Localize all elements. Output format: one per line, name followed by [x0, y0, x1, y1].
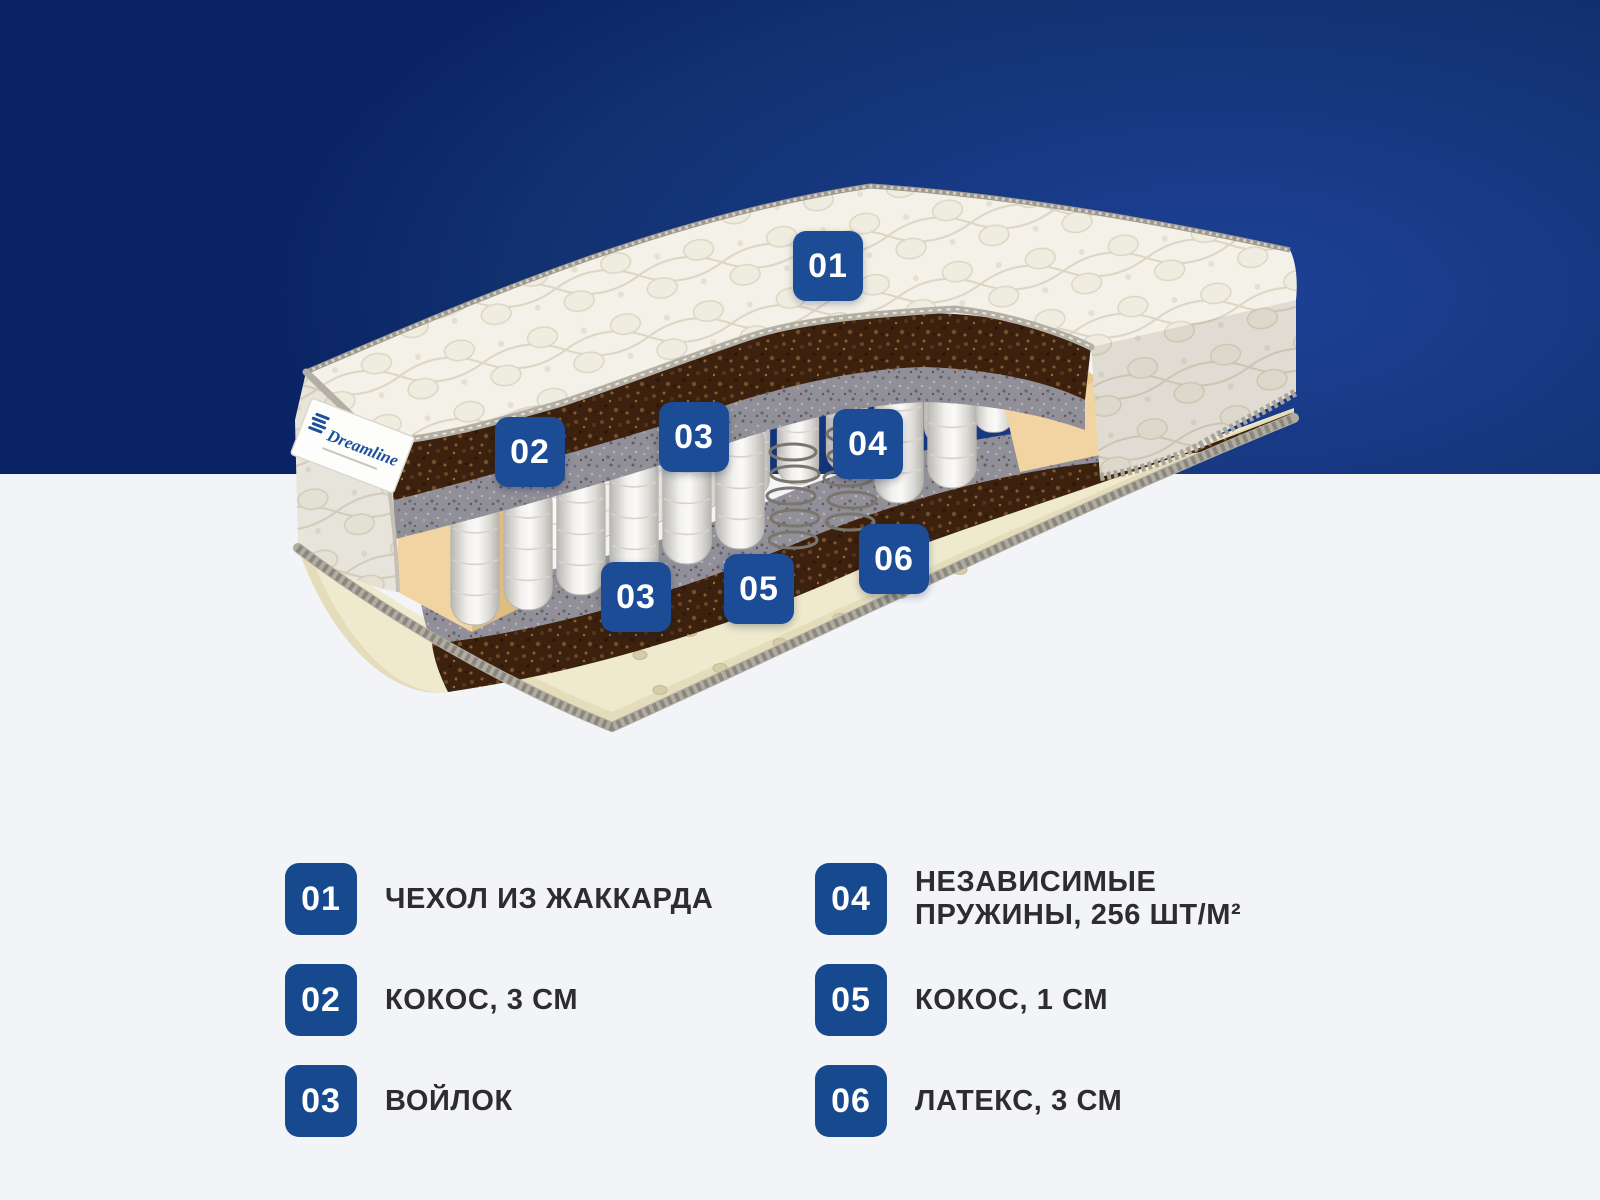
legend-label-02-line1: КОКОС, 3 СМ: [385, 984, 578, 1017]
legend-item-06: 06 ЛАТЕКС, 3 СМ: [815, 1065, 1241, 1137]
callout-badge-05: 05: [724, 554, 794, 624]
mattress-diagram: Dreamline 01 02 03 04 03 05 06: [0, 0, 1600, 1200]
legend-number-02: 02: [285, 964, 357, 1036]
legend-label-06: ЛАТЕКС, 3 СМ: [915, 1085, 1122, 1118]
callout-badge-01-number: 01: [808, 247, 848, 286]
callout-badge-03-bottom: 03: [601, 562, 671, 632]
callout-badge-03-top-number: 03: [674, 418, 714, 457]
callout-badge-05-number: 05: [739, 570, 779, 609]
legend-item-01: 01 ЧЕХОЛ ИЗ ЖАККАРДА: [285, 863, 713, 935]
legend-label-04: НЕЗАВИСИМЫЕ ПРУЖИНЫ, 256 ШТ/М²: [915, 866, 1241, 932]
legend-item-04: 04 НЕЗАВИСИМЫЕ ПРУЖИНЫ, 256 ШТ/М²: [815, 863, 1241, 935]
legend-label-04-line1: НЕЗАВИСИМЫЕ: [915, 866, 1241, 899]
callout-badge-01: 01: [793, 231, 863, 301]
legend-number-06: 06: [815, 1065, 887, 1137]
callout-badge-06-number: 06: [874, 540, 914, 579]
legend-label-03: ВОЙЛОК: [385, 1085, 513, 1118]
legend-number-03: 03: [285, 1065, 357, 1137]
legend-column-left: 01 ЧЕХОЛ ИЗ ЖАККАРДА 02 КОКОС, 3 СМ 03 В…: [285, 863, 713, 1137]
legend-number-01: 01: [285, 863, 357, 935]
callout-badge-03-bottom-number: 03: [616, 578, 656, 617]
callout-badge-02: 02: [495, 417, 565, 487]
legend-column-right: 04 НЕЗАВИСИМЫЕ ПРУЖИНЫ, 256 ШТ/М² 05 КОК…: [815, 863, 1241, 1137]
legend-label-01-line1: ЧЕХОЛ ИЗ ЖАККАРДА: [385, 883, 713, 916]
legend-label-01: ЧЕХОЛ ИЗ ЖАККАРДА: [385, 883, 713, 916]
callout-badge-04-number: 04: [848, 425, 888, 464]
legend-label-05-line1: КОКОС, 1 СМ: [915, 984, 1108, 1017]
mattress-illustration: Dreamline: [0, 0, 1600, 1200]
legend-number-04: 04: [815, 863, 887, 935]
legend-item-03: 03 ВОЙЛОК: [285, 1065, 713, 1137]
legend-label-04-line2: ПРУЖИНЫ, 256 ШТ/М²: [915, 899, 1241, 932]
legend-item-02: 02 КОКОС, 3 СМ: [285, 964, 713, 1036]
legend-label-06-line1: ЛАТЕКС, 3 СМ: [915, 1085, 1122, 1118]
legend-label-02: КОКОС, 3 СМ: [385, 984, 578, 1017]
callout-badge-06: 06: [859, 524, 929, 594]
legend-number-05: 05: [815, 964, 887, 1036]
callout-badge-03-top: 03: [659, 402, 729, 472]
legend-label-03-line1: ВОЙЛОК: [385, 1085, 513, 1118]
callout-badge-04: 04: [833, 409, 903, 479]
callout-badge-02-number: 02: [510, 433, 550, 472]
legend-item-05: 05 КОКОС, 1 СМ: [815, 964, 1241, 1036]
legend-label-05: КОКОС, 1 СМ: [915, 984, 1108, 1017]
